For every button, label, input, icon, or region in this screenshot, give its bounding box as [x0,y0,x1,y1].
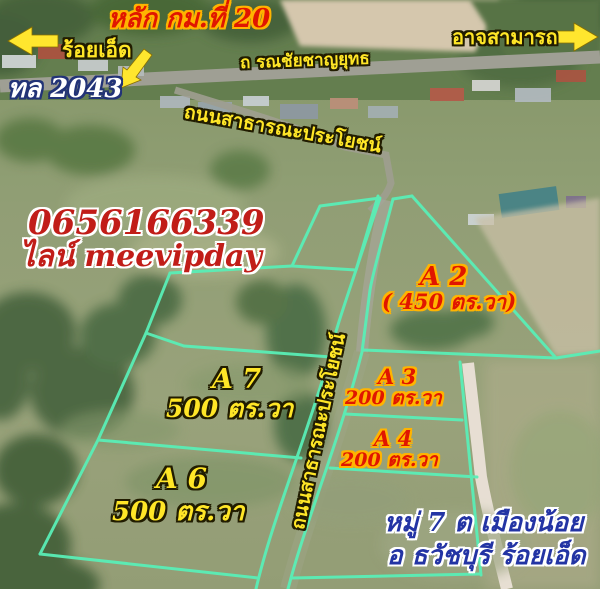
location-line2: อ ธวัชบุรี ร้อยเอ็ด [387,543,586,569]
left-destination-label: ร้อยเอ็ด [62,40,132,61]
plot-a4-area: 200 ตร.วา [341,451,438,470]
km-marker-label: หลัก กม.ที่ 20 [108,6,270,32]
plot-a3-area: 200 ตร.วา [345,389,442,408]
line-account: ไลน์ meevipday [20,242,262,272]
phone-number: 0656166339 [28,206,265,240]
plot-a7-id: A 7 [212,366,261,393]
main-road-name-label: ถ รณชัยชาญยุทธ [240,51,370,73]
plot-a4-id: A 4 [374,428,412,449]
right-destination-label: อาจสามารถ [452,27,558,47]
plot-a6-id: A 6 [156,465,207,493]
plot-a3-id: A 3 [378,366,416,387]
plot-a6-area: 500 ตร.วา [112,499,244,525]
plot-a2-area: ( 450 ตร.วา) [382,291,516,312]
highway-number-label: ทล 2043 [8,76,123,102]
location-line1: หมู่ 7 ต เมืองน้อย [384,510,583,536]
plot-a7-area: 500 ตร.วา [166,396,293,421]
plot-a2-id: A 2 [420,264,467,290]
land-plot-ad-image: หลัก กม.ที่ 20 ร้อยเอ็ด ทล 2043 อาจสามาร… [0,0,600,589]
